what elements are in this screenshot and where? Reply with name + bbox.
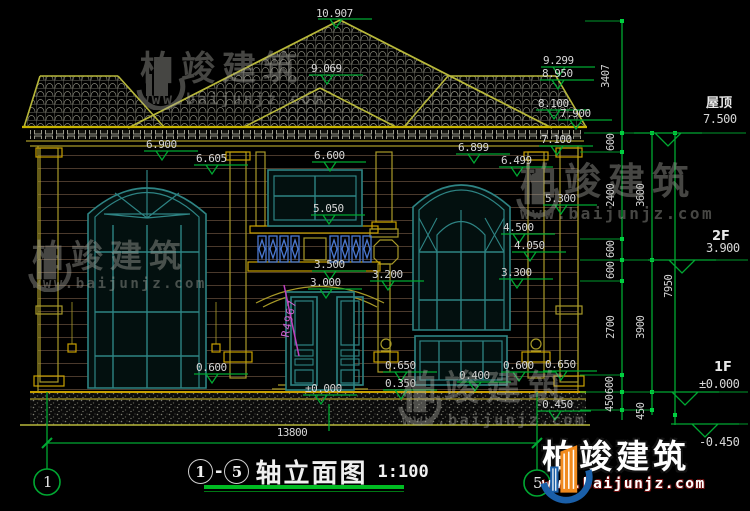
vdim-label: 2700 <box>606 307 617 347</box>
vdim-label: 450 <box>636 391 647 431</box>
dim-label: -0.450 <box>536 399 573 410</box>
vdim-label: 2400 <box>606 175 617 215</box>
cad-elevation-screenshot: 10.907 9.069 9.299 8.950 8.100 7.900 7.1… <box>0 0 750 511</box>
second-floor-window <box>268 170 362 226</box>
dim-label: 6.600 <box>314 150 345 161</box>
dim-label: 4.500 <box>503 222 534 233</box>
dim-label: 0.600 <box>503 360 534 371</box>
dim-label: 9.069 <box>311 63 342 74</box>
dim-label: 3.500 <box>314 259 345 270</box>
title-axis-from: 1 <box>188 459 213 484</box>
dim-label: 0.350 <box>385 378 416 389</box>
dim-label: 0.400 <box>459 370 490 381</box>
brand-logo: 柏竣建筑 www.baijunjz.com <box>538 440 706 492</box>
dim-label: 10.907 <box>316 8 353 19</box>
elevation-drawing <box>0 0 750 511</box>
dim-label: 7.900 <box>560 108 591 119</box>
dim-label: 5.050 <box>313 203 344 214</box>
dim-label: 0.600 <box>196 362 227 373</box>
dim-label: ±0.000 <box>305 383 342 394</box>
drawing-scale: 1:100 <box>378 462 429 482</box>
title-underline <box>204 485 404 489</box>
level-value-1f: ±0.000 <box>699 378 739 390</box>
level-name-roof: 屋顶 <box>706 97 732 110</box>
dim-label: 6.499 <box>501 155 532 166</box>
dim-label: 6.605 <box>196 153 227 164</box>
title-axis-to: 5 <box>224 459 249 484</box>
overall-width-label: 13800 <box>262 427 322 438</box>
vdim-label: 7950 <box>664 266 675 306</box>
axis-number-left: 1 <box>43 475 52 490</box>
dim-label: 5.300 <box>545 193 576 204</box>
level-value-2f: 3.900 <box>706 242 740 254</box>
left-arched-window <box>88 170 206 388</box>
dim-label: 3.000 <box>310 277 341 288</box>
dim-label: 6.899 <box>458 142 489 153</box>
dim-label: 8.950 <box>542 68 573 79</box>
vdim-label: 3600 <box>636 175 647 215</box>
cornice-dentils <box>30 130 583 139</box>
vdim-label: 600 <box>606 122 617 162</box>
cornice-lines <box>26 141 584 146</box>
dim-label: 6.900 <box>146 139 177 150</box>
level-value-roof: 7.500 <box>703 113 737 125</box>
vdim-label: 3407 <box>601 56 612 96</box>
dim-label: 3.200 <box>372 269 403 280</box>
title-dash: - <box>215 461 222 482</box>
dim-label: 9.299 <box>543 55 574 66</box>
right-arched-window <box>413 185 510 330</box>
dim-label: 0.650 <box>385 360 416 371</box>
dimension-chains <box>622 21 675 425</box>
dim-label: 4.050 <box>514 240 545 251</box>
dim-label: 3.300 <box>501 267 532 278</box>
vdim-label: 600 <box>606 250 617 290</box>
brand-logo-icon <box>538 440 594 508</box>
level-name-1f: 1F <box>714 361 732 374</box>
title-underline-thin <box>204 491 404 492</box>
plinth-stone <box>30 392 586 425</box>
dim-label: 0.650 <box>545 359 576 370</box>
vdim-label: 450 <box>605 383 616 423</box>
dim-label: 7.100 <box>541 134 572 145</box>
dimension-ticks <box>620 19 677 417</box>
vdim-label: 3900 <box>636 307 647 347</box>
roof-tiles <box>24 20 586 128</box>
